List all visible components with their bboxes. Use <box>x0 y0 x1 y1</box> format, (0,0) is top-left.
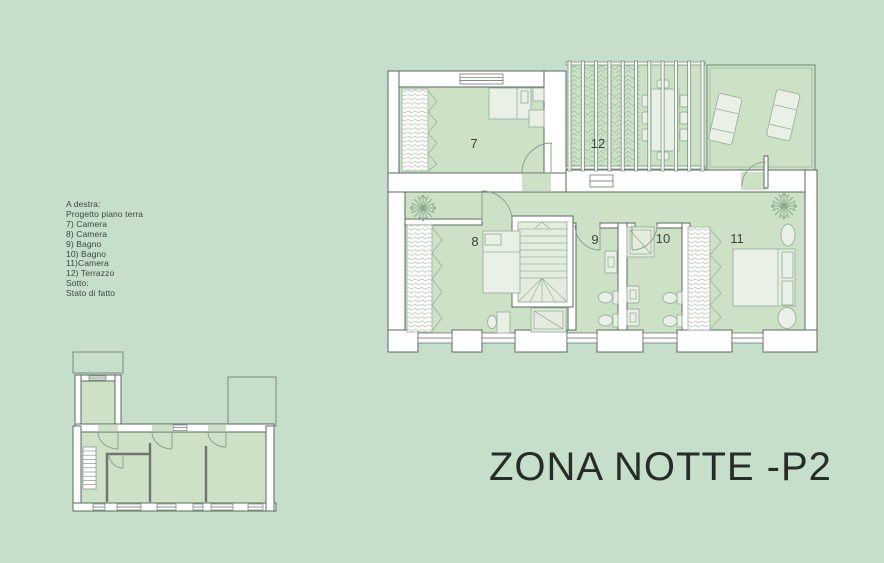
main-floor-plan: 7 12 8 9 10 11 <box>385 55 820 355</box>
bed-room11 <box>733 249 795 306</box>
wall-pier <box>763 330 817 352</box>
small-plan-stairs <box>83 447 96 489</box>
door-opening-room7 <box>522 174 551 191</box>
window <box>157 504 176 510</box>
room-label-12: 12 <box>591 136 605 151</box>
terrace-outline <box>228 377 276 426</box>
bidet <box>599 314 619 327</box>
toilet <box>599 291 619 304</box>
window <box>567 333 597 343</box>
window <box>590 175 613 187</box>
balcony-outline <box>73 352 123 373</box>
small-lower-floor <box>81 432 266 503</box>
shower-room9 <box>531 308 566 332</box>
window <box>211 504 233 510</box>
chair <box>680 129 688 141</box>
wall-9-10 <box>618 223 627 330</box>
pouf <box>778 308 796 329</box>
window <box>89 376 106 380</box>
room-label-8: 8 <box>471 234 478 249</box>
desk <box>529 110 544 127</box>
wall <box>266 426 274 511</box>
wall-left-lower <box>388 192 405 332</box>
wall-pier <box>515 330 567 352</box>
room-label-10: 10 <box>656 231 670 246</box>
wall-pier <box>452 330 482 352</box>
bed-room8 <box>483 231 520 293</box>
nightstand <box>533 88 544 101</box>
window <box>193 504 203 510</box>
page-title: ZONA NOTTE -P2 <box>489 445 832 490</box>
window <box>643 333 677 343</box>
wall-room9-top <box>600 223 618 228</box>
room-label-11: 11 <box>730 231 744 246</box>
sink <box>627 309 639 326</box>
window <box>732 333 763 343</box>
legend: A destra: Progetto piano terra 7) Camera… <box>66 200 143 299</box>
wall-room8-top <box>405 219 482 225</box>
toilet <box>663 292 682 304</box>
pouf <box>781 224 795 246</box>
window <box>482 333 515 343</box>
window <box>117 504 141 510</box>
door-opening <box>208 425 226 431</box>
wall <box>73 426 81 511</box>
window <box>248 504 263 510</box>
window <box>418 333 452 343</box>
chair <box>680 112 688 124</box>
wall-pier <box>388 330 418 352</box>
wall-pier <box>597 330 643 352</box>
wall <box>75 375 81 426</box>
door-opening <box>98 425 118 431</box>
room-label-9: 9 <box>591 232 598 247</box>
wall-right <box>805 170 817 352</box>
sink <box>605 251 617 273</box>
staircase <box>512 216 573 307</box>
room-label-7: 7 <box>470 136 477 151</box>
door-opening <box>152 425 172 431</box>
existing-state-plan <box>68 346 290 516</box>
small-room-floor <box>81 381 115 424</box>
chair <box>488 316 497 329</box>
window <box>460 74 503 84</box>
deck-pattern <box>568 65 640 168</box>
window <box>173 425 187 431</box>
wall <box>115 375 121 426</box>
bidet <box>663 315 682 327</box>
wall-room10-top-r <box>657 223 682 228</box>
wall-pier <box>677 330 732 352</box>
chair <box>680 95 688 107</box>
sink <box>627 286 639 303</box>
legend-line: Stato di fatto <box>66 289 143 299</box>
window <box>93 504 105 510</box>
